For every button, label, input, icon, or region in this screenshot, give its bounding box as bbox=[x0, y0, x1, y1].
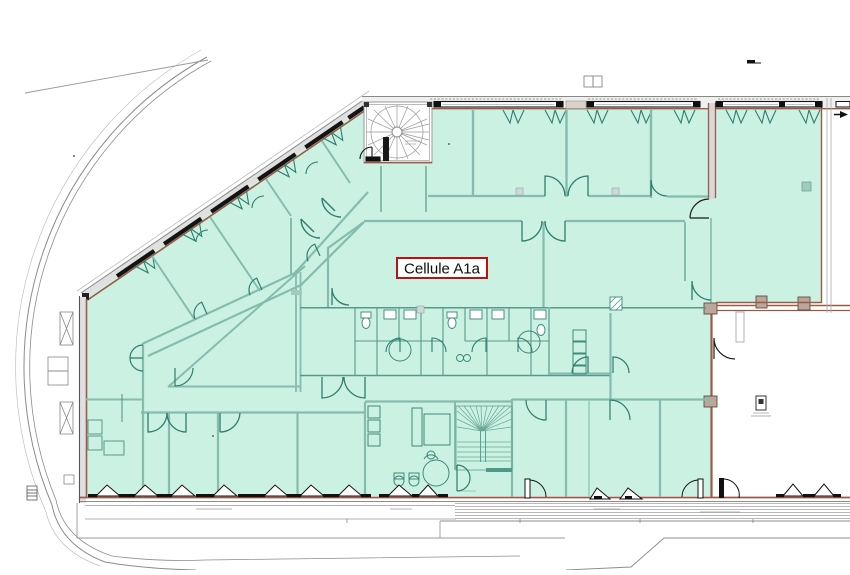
svg-text:Cellule A1a: Cellule A1a bbox=[404, 261, 481, 278]
